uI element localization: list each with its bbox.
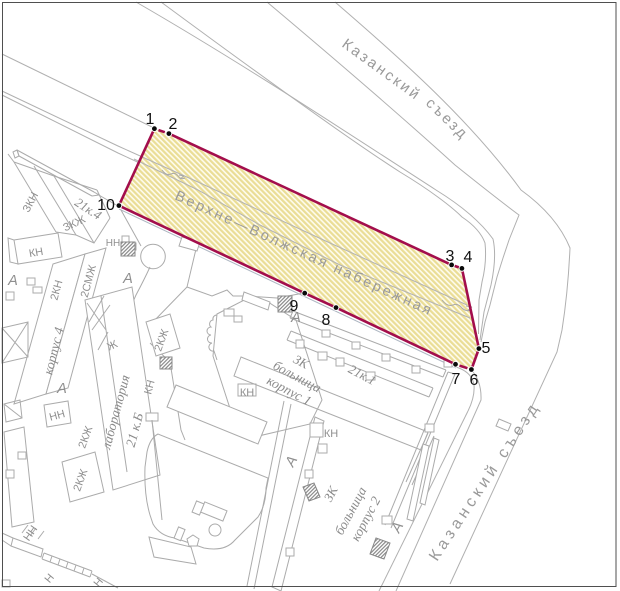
svg-text:4: 4 [464,249,473,266]
svg-text:КН: КН [324,428,338,440]
svg-text:А: А [56,381,67,397]
svg-text:7: 7 [452,371,461,388]
svg-text:КН: КН [240,387,254,399]
svg-text:НН: НН [106,238,120,249]
svg-text:КН: КН [28,246,44,260]
svg-text:8: 8 [322,312,331,329]
svg-text:3: 3 [446,248,455,265]
svg-text:6: 6 [470,372,479,389]
svg-text:А: А [122,271,133,287]
svg-text:А: А [7,273,18,289]
svg-text:5: 5 [482,340,491,357]
svg-text:А: А [290,310,301,326]
svg-text:2: 2 [169,116,178,133]
svg-text:1: 1 [146,111,155,128]
